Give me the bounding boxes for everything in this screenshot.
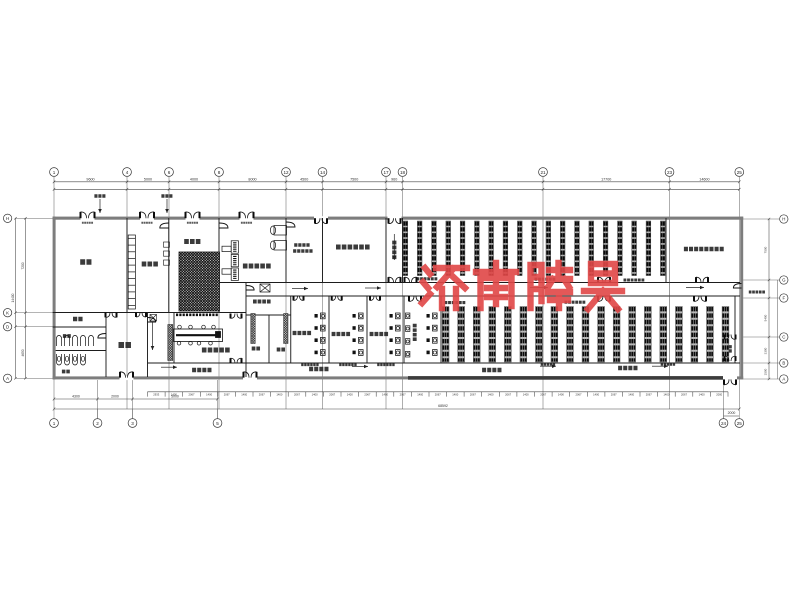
- svg-text:18: 18: [400, 170, 406, 175]
- svg-text:1400: 1400: [347, 392, 353, 396]
- svg-text:1400: 1400: [382, 392, 388, 396]
- svg-text:12: 12: [283, 170, 289, 175]
- svg-text:4: 4: [126, 170, 129, 175]
- svg-text:5400: 5400: [764, 314, 768, 321]
- svg-text:2067: 2067: [435, 392, 441, 396]
- svg-text:1400: 1400: [558, 392, 564, 396]
- svg-text:2067: 2067: [646, 392, 652, 396]
- svg-text:2067: 2067: [681, 392, 687, 396]
- svg-text:2067: 2067: [329, 392, 335, 396]
- svg-text:1400: 1400: [523, 392, 529, 396]
- svg-text:2067: 2067: [189, 392, 195, 396]
- svg-text:9600: 9600: [86, 178, 94, 182]
- svg-text:25: 25: [737, 170, 743, 175]
- svg-text:1400: 1400: [663, 392, 669, 396]
- svg-text:A: A: [6, 376, 9, 381]
- svg-text:8000: 8000: [248, 178, 256, 182]
- svg-text:4500: 4500: [300, 178, 308, 182]
- svg-text:1: 1: [53, 421, 56, 426]
- svg-text:25: 25: [737, 421, 743, 426]
- svg-text:2067: 2067: [470, 392, 476, 396]
- svg-text:5000: 5000: [171, 395, 179, 399]
- svg-text:2067: 2067: [294, 392, 300, 396]
- svg-text:3300: 3300: [764, 347, 768, 354]
- svg-text:1400: 1400: [488, 392, 494, 396]
- svg-text:17700: 17700: [601, 178, 611, 182]
- svg-text:7500: 7500: [350, 178, 358, 182]
- svg-text:4650: 4650: [21, 349, 25, 356]
- svg-text:2067: 2067: [505, 392, 511, 396]
- svg-text:960: 960: [391, 178, 397, 182]
- svg-text:1400: 1400: [241, 392, 247, 396]
- svg-text:2933: 2933: [153, 392, 159, 396]
- svg-text:2067: 2067: [400, 392, 406, 396]
- svg-text:3: 3: [131, 421, 134, 426]
- svg-text:8: 8: [218, 170, 221, 175]
- svg-text:1: 1: [53, 170, 56, 175]
- svg-text:K: K: [6, 310, 9, 315]
- svg-text:24: 24: [721, 421, 727, 426]
- svg-text:2000: 2000: [716, 392, 722, 396]
- svg-text:H: H: [6, 216, 9, 221]
- svg-text:17: 17: [383, 170, 389, 175]
- svg-text:4300: 4300: [72, 395, 80, 399]
- svg-text:21: 21: [540, 170, 546, 175]
- svg-text:2067: 2067: [540, 392, 546, 396]
- svg-text:2067: 2067: [364, 392, 370, 396]
- svg-text:2: 2: [96, 421, 99, 426]
- svg-text:14600: 14600: [699, 178, 709, 182]
- svg-text:H: H: [782, 217, 785, 222]
- svg-text:1400: 1400: [312, 392, 318, 396]
- svg-text:2000: 2000: [728, 411, 736, 415]
- svg-text:6: 6: [168, 170, 171, 175]
- svg-text:A: A: [782, 377, 785, 382]
- svg-text:14400: 14400: [11, 293, 15, 302]
- svg-text:23: 23: [667, 170, 673, 175]
- svg-text:1500: 1500: [764, 368, 768, 375]
- svg-text:2067: 2067: [224, 392, 230, 396]
- svg-text:68592: 68592: [438, 404, 448, 408]
- svg-text:5: 5: [216, 421, 219, 426]
- svg-text:1400: 1400: [699, 392, 705, 396]
- svg-text:C: C: [782, 335, 785, 340]
- svg-text:1400: 1400: [452, 392, 458, 396]
- svg-text:7200: 7200: [21, 262, 25, 269]
- svg-text:7500: 7500: [764, 246, 768, 253]
- svg-text:2067: 2067: [576, 392, 582, 396]
- svg-text:G: G: [782, 278, 786, 283]
- svg-text:14: 14: [320, 170, 326, 175]
- svg-text:1400: 1400: [417, 392, 423, 396]
- svg-text:5000: 5000: [144, 178, 152, 182]
- svg-text:2067: 2067: [611, 392, 617, 396]
- svg-text:1400: 1400: [628, 392, 634, 396]
- svg-text:F: F: [782, 296, 785, 301]
- svg-text:1400: 1400: [276, 392, 282, 396]
- svg-text:4000: 4000: [190, 178, 198, 182]
- svg-text:2000: 2000: [111, 395, 119, 399]
- svg-text:1400: 1400: [206, 392, 212, 396]
- svg-text:D: D: [6, 324, 9, 329]
- svg-text:1400: 1400: [593, 392, 599, 396]
- svg-text:2067: 2067: [259, 392, 265, 396]
- svg-text:B: B: [782, 361, 785, 366]
